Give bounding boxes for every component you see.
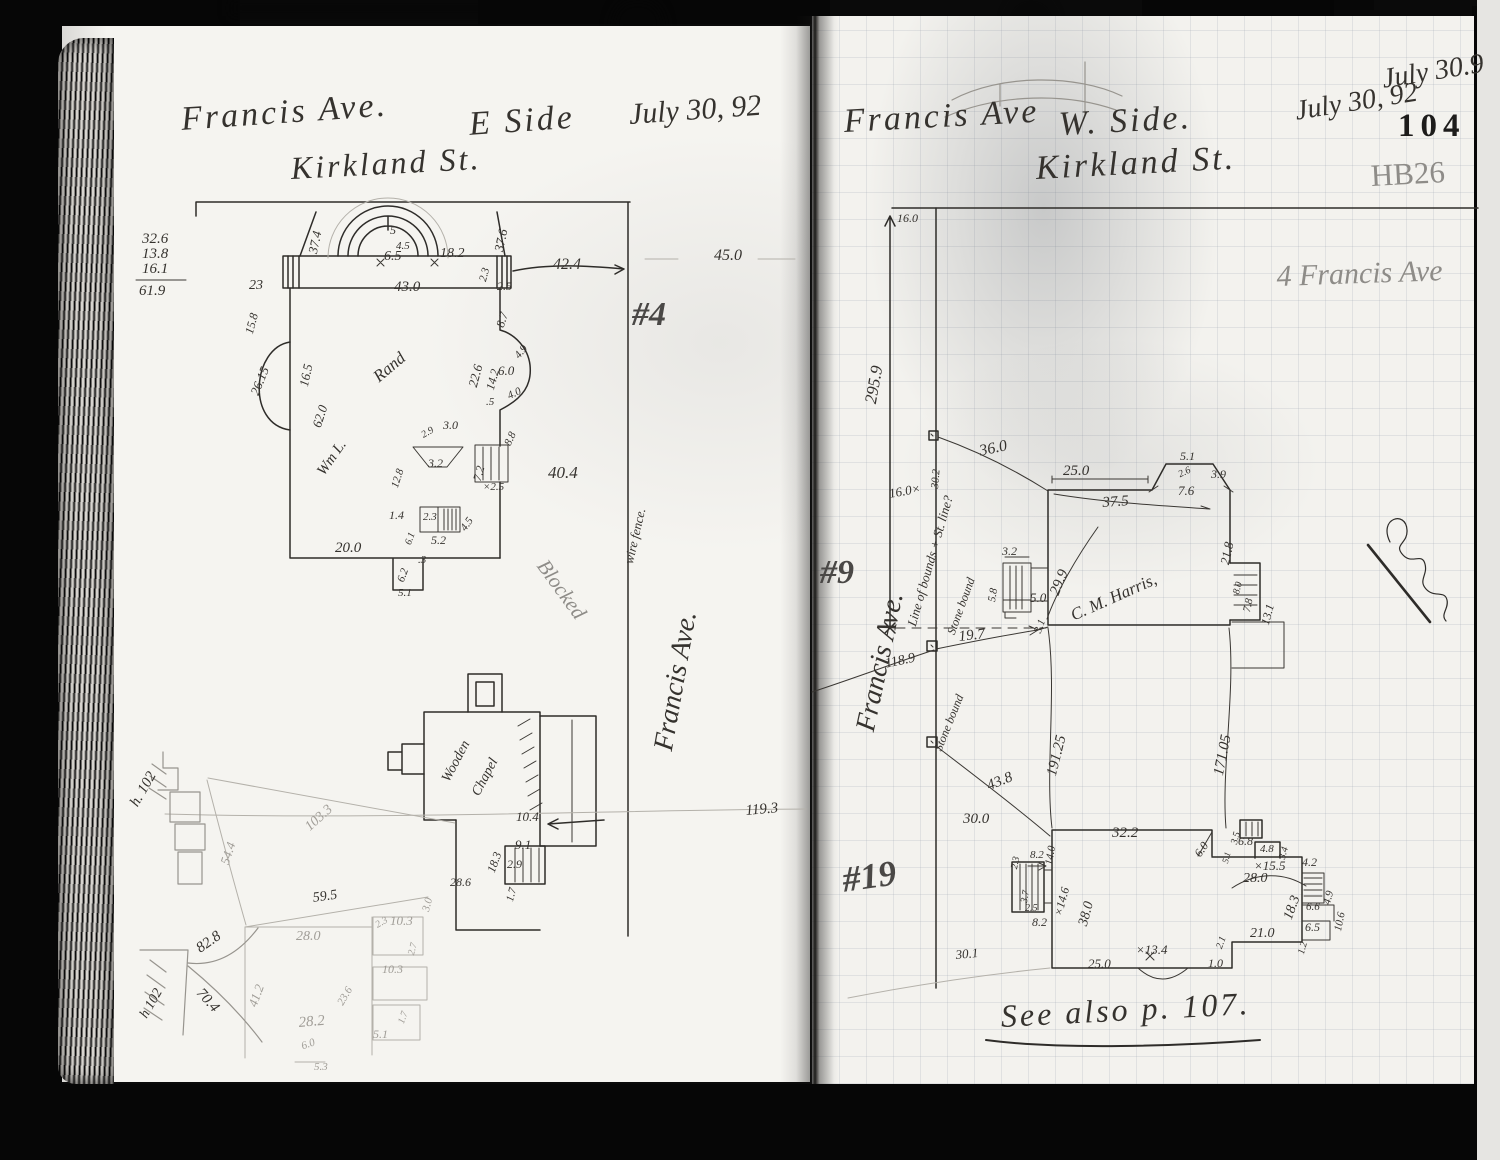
dim: 6.0 — [498, 364, 514, 377]
dim: 15.8 — [243, 312, 260, 335]
dim: 4.2 — [1302, 856, 1317, 868]
dim: 18.3 — [1282, 894, 1304, 922]
dim: 45.0 — [714, 248, 742, 264]
boundary-note: Line of bounds + St. line? — [905, 494, 955, 628]
dim: 43.0 — [394, 280, 420, 295]
dim: 36.0 — [978, 438, 1009, 459]
dim: 42.4 — [553, 257, 581, 273]
dim: 23 — [249, 279, 263, 293]
dim: 8.8 — [503, 431, 519, 448]
dim: 9.1 — [515, 838, 531, 851]
dim: 3.1 — [1033, 618, 1048, 635]
dim: 1.0 — [1208, 957, 1223, 969]
dim: 171.05 — [1212, 734, 1235, 777]
margin-sum-2: 13.8 — [142, 247, 168, 262]
dim: 4.0 — [506, 386, 523, 402]
margin-sum-1: 32.6 — [142, 232, 168, 247]
dim: 41.2 — [246, 983, 266, 1009]
dim: 5.1 — [1221, 851, 1233, 864]
dim: 5.3 — [314, 1062, 328, 1073]
dim: 8.0 — [1232, 581, 1245, 596]
dim: 2.7 — [407, 942, 420, 957]
dim: 2.3 — [478, 267, 492, 283]
dim: 2.6 — [1177, 466, 1193, 480]
dim: 2.1 — [1215, 935, 1229, 950]
dim: 32.2 — [1112, 826, 1138, 841]
dim: 28.0 — [1243, 872, 1268, 886]
building-label-2: Chapel — [470, 756, 501, 798]
dim: 25.0 — [1088, 957, 1111, 970]
dim: 119.3 — [745, 801, 779, 819]
dim: 7.6 — [1178, 484, 1194, 497]
dim: 5.8 — [987, 587, 1000, 602]
dim: 5.0 — [1030, 591, 1046, 604]
owner-name-left-2: Rand — [370, 349, 408, 385]
dim: 16.0× — [888, 482, 921, 500]
dim: 59.5 — [312, 889, 338, 906]
fence-note: wire fence. — [622, 507, 647, 565]
dim: ×2.5 — [483, 482, 504, 493]
dim: 295.9 — [862, 364, 885, 405]
dim: 5 — [390, 224, 396, 236]
dim: 40.4 — [548, 464, 578, 481]
dim: 3.0 — [421, 897, 435, 913]
dim: 10.3 — [390, 914, 413, 927]
dim: 28.2 — [298, 1014, 325, 1031]
dim: 21.0 — [1250, 927, 1275, 941]
dim: 16.5 — [297, 363, 314, 388]
dim: 3.9 — [1211, 468, 1226, 480]
dim: 1.7 — [397, 1010, 411, 1025]
dim: 29.9 — [1048, 568, 1072, 598]
bound-note: Stone bound — [932, 693, 965, 753]
dim: 12.8 — [390, 468, 406, 490]
dim: 6.5 — [1305, 921, 1320, 933]
dim: .5 — [486, 397, 494, 408]
scanned-notebook-spread: 32.613.816.161.937.454.56.518.243.037.62… — [0, 0, 1500, 1160]
dim: 3.2 — [1002, 545, 1017, 557]
dim: 21.8 — [1218, 541, 1235, 566]
owner-name-right: C. M. Harris, — [1068, 571, 1159, 624]
dim: 7.2 — [471, 465, 486, 483]
dim: 7.8 — [1242, 598, 1256, 614]
dim: 26.15 — [248, 365, 271, 397]
dim: 10.4 — [516, 810, 539, 823]
dim: 1.2 — [1297, 941, 1310, 956]
dim: 22.6 — [466, 363, 484, 388]
dim: 30.0 — [963, 812, 989, 827]
left-page-title-side: E Side — [468, 101, 576, 142]
dim: 20.0 — [335, 541, 361, 556]
dim: 37.5 — [1102, 494, 1129, 511]
dim: .3 — [418, 555, 426, 566]
dim: 3.0 — [443, 419, 458, 431]
dim: ×13.4 — [1136, 943, 1168, 956]
dim: 2.9 — [420, 426, 436, 441]
dim: 37.6 — [492, 228, 509, 253]
dim: 28.0 — [296, 930, 321, 944]
dim: 2.3 — [1010, 856, 1022, 870]
dim: 6.1 — [404, 531, 418, 546]
dim: 10.3 — [382, 963, 403, 975]
margin-sum-total: 61.9 — [139, 284, 165, 299]
blocked-note: Blocked — [533, 556, 590, 623]
dim: 2.5 — [1025, 904, 1038, 914]
dim: 103.3 — [303, 803, 336, 834]
dim: 43.8 — [985, 770, 1015, 794]
dim: 8.7 — [494, 311, 510, 329]
dim: 5.1 — [398, 588, 412, 599]
dim: 2.3 — [374, 916, 390, 931]
right-page-title-side: W. Side. — [1058, 101, 1193, 142]
street-label-left: Francis Ave. — [650, 609, 702, 753]
dim: 3.2 — [428, 457, 443, 469]
annotation-labels: 32.613.816.161.937.454.56.518.243.037.62… — [0, 0, 1500, 1160]
dim: 6.2 — [396, 567, 411, 584]
dim: 4.9 — [1322, 890, 1336, 906]
dim: 4.9 — [513, 343, 530, 361]
dim: 4.8 — [1260, 844, 1274, 855]
dim: 10.6 — [1333, 911, 1348, 932]
dim: 191.25 — [1045, 734, 1070, 778]
dim: 2.9 — [507, 858, 522, 870]
dim: 5.1 — [1180, 450, 1195, 462]
dim: 37.4 — [306, 230, 323, 255]
address-note: 4 Francis Ave — [1276, 256, 1443, 292]
dim: 1.4 — [389, 509, 404, 521]
dim: 14.0 — [1044, 845, 1058, 866]
dim: 2.3 — [423, 512, 437, 523]
dim: 30.2 — [930, 469, 943, 489]
dim: 16.0 — [897, 212, 918, 224]
dim: 25.0 — [1063, 464, 1089, 479]
lot-number-4: #4 — [632, 298, 666, 332]
dim: 5.1 — [373, 1028, 388, 1040]
dim: ×14.6 — [1052, 886, 1071, 917]
dim: 6.0 — [300, 1037, 317, 1052]
dim: 13.1 — [1259, 603, 1276, 626]
dim: 30.1 — [955, 946, 979, 961]
dim: 1.7 — [505, 887, 519, 903]
ref-note: h. 102 — [128, 770, 160, 810]
dim: 28.6 — [450, 876, 471, 888]
ref-note: h 102 — [138, 987, 166, 1021]
dim: 82.8 — [194, 929, 224, 956]
dim: 62.0 — [310, 403, 329, 429]
dim: 5.2 — [431, 534, 446, 546]
dim: 8.2 — [1032, 916, 1047, 928]
dim: 3.7 — [1020, 890, 1032, 904]
building-label-1: Wooden — [440, 739, 473, 785]
dim: 6.5 — [384, 250, 402, 264]
dim: 54.4 — [218, 840, 237, 866]
dim: 2.5 — [497, 280, 512, 292]
dim: 8.2 — [1030, 850, 1044, 861]
lot-number-9: #9 — [820, 556, 854, 590]
margin-sum-3: 16.1 — [142, 262, 168, 277]
page-number-stamp: 104 — [1398, 110, 1466, 143]
dim: 70.4 — [193, 986, 222, 1016]
dim: 4.5 — [459, 516, 476, 534]
dim: 19.7 — [958, 627, 986, 645]
dim: 6.8 — [1238, 835, 1253, 847]
dim: 18.3 — [485, 850, 503, 874]
dim: 18.2 — [440, 247, 465, 261]
dim: 6.0 — [1192, 840, 1210, 859]
book-reference-note: HB26 — [1370, 156, 1446, 191]
owner-name-left-1: Wm L. — [315, 438, 350, 479]
dim: 6.6 — [1306, 902, 1320, 913]
lot-number-19: #19 — [840, 854, 898, 897]
dim: 38.0 — [1077, 900, 1097, 927]
dim: 23.6 — [336, 985, 355, 1007]
